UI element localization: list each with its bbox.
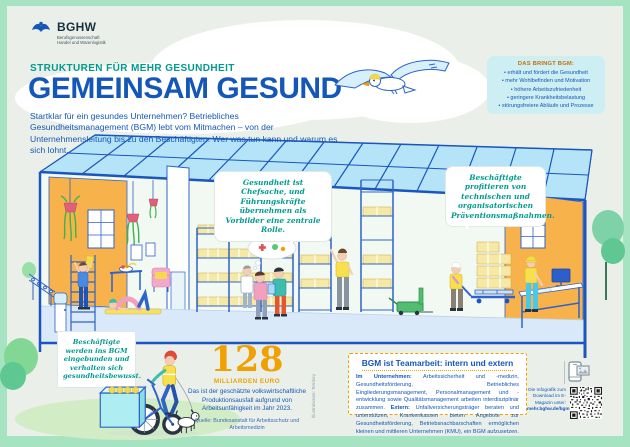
download-link: mehr.bghw.de/bgm xyxy=(527,406,570,411)
benefit-item: höhere Arbeitszufriedenheit xyxy=(491,86,601,94)
benefit-item: störungsfreiere Abläufe und Prozesse xyxy=(491,102,601,110)
speech-bubble-prevention: Beschäftigte profitieren von technischen… xyxy=(445,166,546,227)
logo-name: BGHW xyxy=(57,20,106,34)
page-title: GEMEINSAM GESUND xyxy=(28,72,342,106)
qr-code xyxy=(570,387,602,419)
infographic-poster: BGHW Berufsgenossenschaft Handel und War… xyxy=(0,0,630,447)
benefit-item: mehr Wohlbefinden und Motivation xyxy=(491,77,601,85)
teamwork-box: BGM ist Teamarbeit: intern und extern Im… xyxy=(348,353,527,415)
stat-number: 128 xyxy=(183,343,311,376)
benefits-title: DAS BRINGT BGM: xyxy=(491,61,601,67)
dotted-separator xyxy=(362,370,513,371)
benefit-item: geringere Krankheitsbelastung xyxy=(491,94,601,102)
benefits-list: erhält und fördert die Gesundheit mehr W… xyxy=(491,69,601,110)
stat-description: Das ist der geschätzte volkswirtschaftli… xyxy=(183,388,311,414)
computer-monitor xyxy=(552,269,570,282)
picture-frame xyxy=(146,243,155,256)
teamwork-intern-label: Im Unternehmen: xyxy=(356,374,423,380)
download-text: Die Infografik zum Download im E-Magazin… xyxy=(528,387,566,405)
intro-text: Startklar für ein gesundes Unternehmen? … xyxy=(30,111,338,156)
bghw-logo-icon xyxy=(30,20,52,38)
phone-photo-icon xyxy=(568,359,590,383)
credit-vertical: Illustrationen: Territory xyxy=(311,348,316,418)
stat-source: Quelle: Bundesanstalt für Arbeitsschutz … xyxy=(183,418,311,432)
benefit-item: erhält und fördert die Gesundheit xyxy=(491,69,601,77)
stat-unit: MILLIARDEN EURO xyxy=(183,378,311,385)
doorway xyxy=(171,272,185,310)
divider-line xyxy=(564,361,565,384)
picture-frame xyxy=(131,245,142,260)
download-note: Die Infografik zum Download im E-Magazin… xyxy=(527,387,566,412)
teamwork-extern-label: Extern: xyxy=(391,405,416,411)
bush-left xyxy=(0,362,26,390)
logo-subline2: Handel und Warenlogistik xyxy=(57,40,106,45)
teamwork-body: Im Unternehmen: Arbeitssicherheit und -m… xyxy=(356,374,519,437)
water-cooler xyxy=(54,293,67,332)
statistic-block: 128 MILLIARDEN EURO Das ist der geschätz… xyxy=(183,343,311,432)
bghw-logo: BGHW Berufsgenossenschaft Handel und War… xyxy=(30,20,106,46)
bird-illustration xyxy=(333,57,453,109)
room-window xyxy=(88,210,114,248)
benefits-box: DAS BRINGT BGM: erhält und fördert die G… xyxy=(487,56,605,114)
warehouse-scene-illustration xyxy=(25,122,610,362)
teamwork-title: BGM ist Teamarbeit: intern und extern xyxy=(356,358,519,368)
speech-bubble-leadership: Gesundheit ist Chefsache, und Führungskr… xyxy=(214,171,332,242)
